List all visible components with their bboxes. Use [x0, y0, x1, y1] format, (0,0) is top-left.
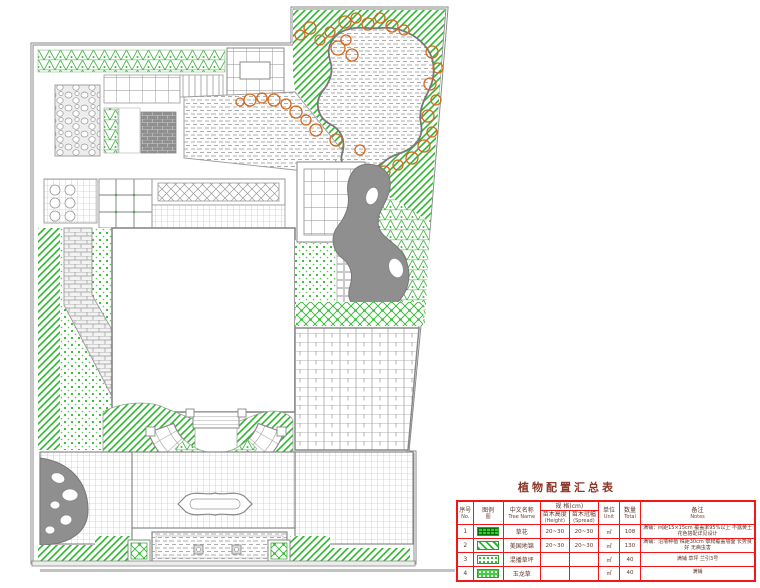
plant-notes: 满铺：沿墙种植 株距30cm 攀爬覆盖墙面 长势良好 无病虫害: [641, 539, 755, 553]
drum-stone-paving: [44, 179, 97, 223]
row-no: 2: [457, 539, 473, 553]
plant-unit: ㎡: [598, 525, 619, 539]
col-header-name: 中文名称 Tree Name: [503, 501, 540, 525]
plant-unit: ㎡: [598, 567, 619, 581]
ornamental-pool: [178, 493, 252, 515]
canvas: 植物配置汇总表 序号 No. 图例 图 中文名称 Tree Name: [0, 0, 760, 588]
south-plaza: [130, 452, 295, 528]
east-lawn-dots: [295, 243, 337, 307]
col-header-height: 苗木高度 (Height): [540, 511, 569, 525]
water-channel: [152, 532, 287, 562]
plant-height: 20~30: [540, 539, 569, 553]
legend-swatch-green-diagonal-stripes: [473, 539, 503, 553]
plant-height: [540, 553, 569, 567]
green-x-hatch-icon: [477, 569, 499, 578]
green-diagonal-stripes-icon: [477, 541, 499, 550]
table-row: 1 草花 20~30 20~30 ㎡ 108 满铺：间距15×15cm 覆盖率9…: [457, 525, 755, 539]
plant-total: 40: [620, 553, 641, 567]
plant-total: 40: [620, 567, 641, 581]
row-no: 4: [457, 567, 473, 581]
planter-west: [128, 540, 150, 562]
plant-unit: ㎡: [598, 553, 619, 567]
table-row: 2 美国地锦 20~30 20~30 ㎡ 130 满铺：沿墙种植 株距30cm …: [457, 539, 755, 553]
plant-spread: [569, 567, 598, 581]
green-grid-hatch-icon: [477, 527, 499, 536]
landscape-plan: [0, 0, 460, 588]
plant-notes: 满铺: [641, 567, 755, 581]
east-deck: [295, 328, 419, 450]
col-header-spread: 苗木冠幅 (Spread): [569, 511, 598, 525]
planter-east: [268, 540, 290, 562]
legend-swatch-green-dot-hatch: [473, 553, 503, 567]
plant-total: 108: [620, 525, 641, 539]
col-header-unit: 单位 Unit: [598, 501, 619, 525]
col-header-total: 数量 Total: [620, 501, 641, 525]
trellis-walk: [152, 179, 285, 228]
stair: [193, 412, 239, 428]
plant-name: 美国地锦: [503, 539, 540, 553]
plant-notes: 满铺 草坪 兰引3号: [641, 553, 755, 567]
plant-notes: 满铺：间距15×15cm 覆盖率95%以上 不露黄土 花色搭配详见设计: [641, 525, 755, 539]
grid-plaza-3x3: [99, 179, 152, 228]
mondo-band: [296, 302, 424, 326]
south-wall: [32, 561, 455, 572]
west-hedge-strip: [38, 228, 60, 450]
plant-name: 草花: [503, 525, 540, 539]
plant-spread: 20~30: [569, 525, 598, 539]
col-header-spec: 规 格(cm): [540, 501, 598, 511]
plant-total: 130: [620, 539, 641, 553]
wall-shadow: [40, 569, 455, 572]
table-row: 4 玉龙草 ㎡ 40 满铺: [457, 567, 755, 581]
row-no: 3: [457, 553, 473, 567]
col-header-notes: 备注 Notes: [641, 501, 755, 525]
plant-name: 混播草坪: [503, 553, 540, 567]
plant-table-panel: 植物配置汇总表 序号 No. 图例 图 中文名称 Tree Name: [456, 479, 758, 582]
plant-config-table: 序号 No. 图例 图 中文名称 Tree Name 规 格(cm) 单位 Un…: [456, 500, 756, 582]
plant-spread: 20~30: [569, 539, 598, 553]
row-no: 1: [457, 525, 473, 539]
plant-spread: [569, 553, 598, 567]
green-dot-hatch-icon: [477, 555, 499, 564]
table-row: 3 混播草坪 ㎡ 40 满铺 草坪 兰引3号: [457, 553, 755, 567]
col-header-no: 序号 No.: [457, 501, 473, 525]
plant-height: [540, 567, 569, 581]
courtyard: [112, 228, 295, 412]
legend-swatch-green-x-hatch: [473, 567, 503, 581]
north-pavilion: [227, 48, 284, 95]
table-title: 植物配置汇总表: [456, 479, 758, 495]
legend-swatch-green-grid-hatch: [473, 525, 503, 539]
plant-unit: ㎡: [598, 539, 619, 553]
plant-height: 20~30: [540, 525, 569, 539]
plant-name: 玉龙草: [503, 567, 540, 581]
north-lawn-band: [38, 50, 225, 72]
col-header-legend: 图例 图: [473, 501, 503, 525]
